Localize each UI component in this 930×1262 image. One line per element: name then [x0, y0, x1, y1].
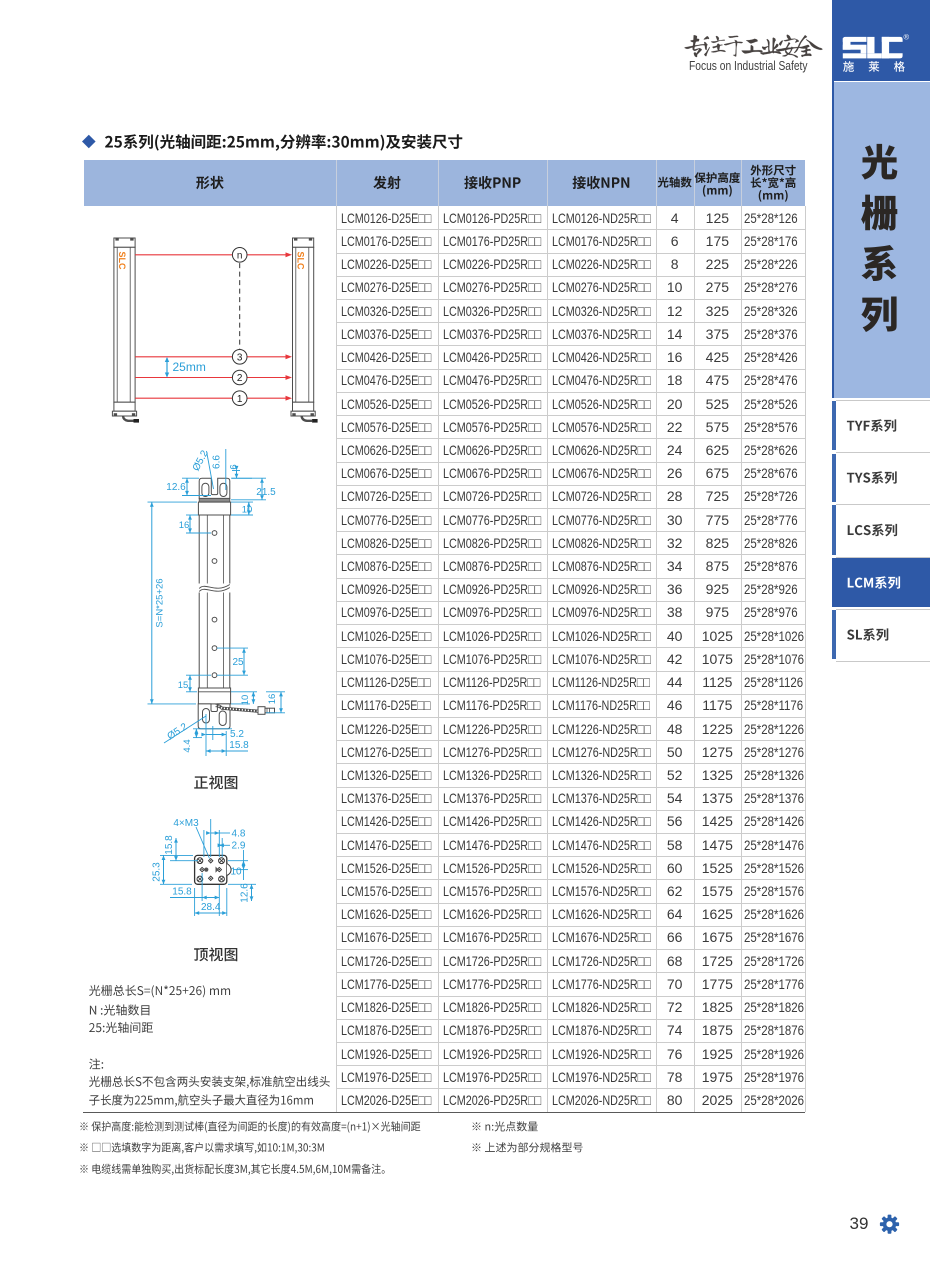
svg-text:S=N*25+26: S=N*25+26: [155, 578, 166, 627]
svg-text:10: 10: [240, 695, 251, 706]
svg-text:2.9: 2.9: [232, 841, 246, 852]
svg-text:Ø5.2: Ø5.2: [166, 721, 191, 742]
svg-text:15.8: 15.8: [172, 887, 192, 898]
svg-text:25mm: 25mm: [173, 360, 206, 374]
svg-text:2: 2: [237, 373, 243, 384]
svg-text:12.6: 12.6: [240, 883, 251, 903]
svg-text:10: 10: [242, 505, 253, 516]
svg-text:6.6: 6.6: [212, 455, 223, 469]
svg-text:16: 16: [267, 694, 278, 705]
svg-text:SLC: SLC: [296, 252, 306, 271]
svg-text:21.5: 21.5: [256, 487, 276, 498]
svg-text:4×M3: 4×M3: [173, 818, 199, 829]
svg-text:12.6: 12.6: [166, 482, 186, 493]
svg-text:®: ®: [904, 33, 910, 42]
svg-text:16: 16: [179, 520, 190, 531]
svg-text:5.2: 5.2: [230, 729, 244, 740]
svg-text:1: 1: [237, 394, 243, 405]
svg-text:10: 10: [230, 867, 242, 878]
svg-text:6: 6: [229, 464, 240, 469]
svg-text:SLC: SLC: [117, 252, 127, 271]
svg-text:3: 3: [237, 352, 243, 363]
svg-text:15.8: 15.8: [229, 740, 249, 751]
svg-text:4.8: 4.8: [232, 829, 246, 840]
svg-text:15.8: 15.8: [164, 835, 175, 855]
svg-text:25.3: 25.3: [152, 862, 163, 882]
svg-text:25: 25: [232, 657, 244, 668]
svg-text:4.4: 4.4: [182, 739, 193, 752]
svg-text:15: 15: [178, 680, 189, 691]
svg-text:28.4: 28.4: [201, 902, 221, 913]
svg-text:n: n: [237, 250, 243, 261]
